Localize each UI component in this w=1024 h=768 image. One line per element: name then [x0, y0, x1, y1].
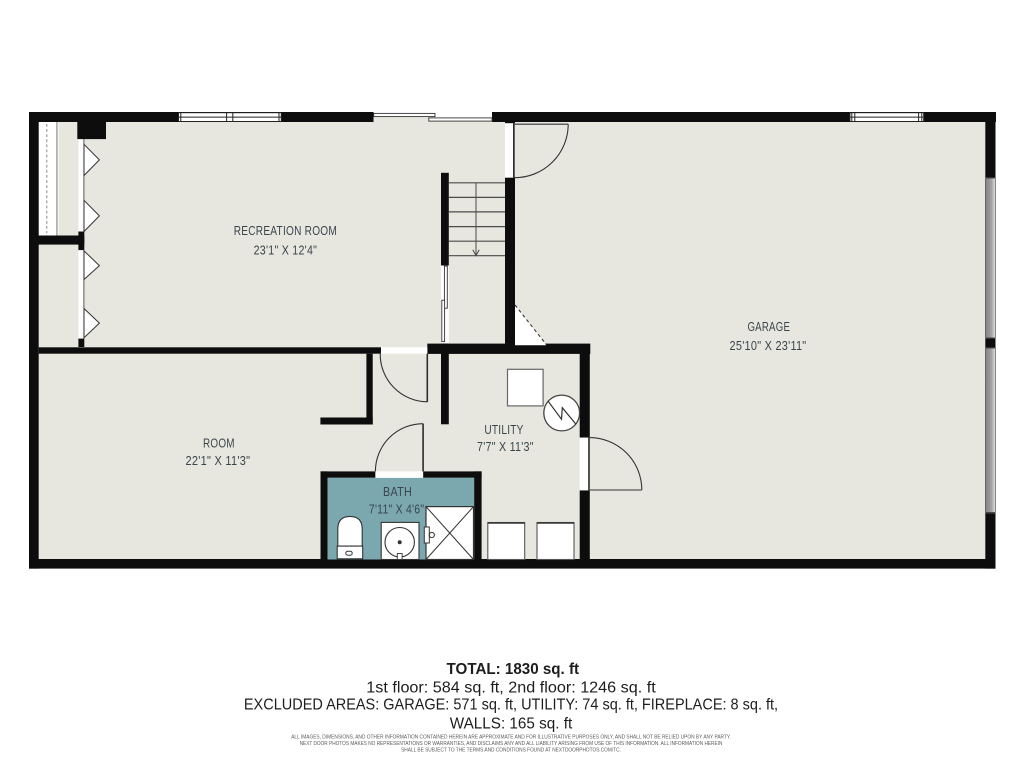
svg-text:SHALL BE SUBJECT TO THE TERMS: SHALL BE SUBJECT TO THE TERMS AND CONDIT…	[401, 748, 621, 754]
svg-text:UTILITY: UTILITY	[484, 423, 524, 437]
svg-text:ROOM: ROOM	[203, 436, 235, 450]
svg-text:NEXT DOOR PHOTOS MAKES NO REPR: NEXT DOOR PHOTOS MAKES NO REPRESENTATION…	[300, 741, 723, 747]
svg-text:RECREATION ROOM: RECREATION ROOM	[234, 224, 337, 238]
svg-text:23'1" X 12'4": 23'1" X 12'4"	[254, 244, 318, 258]
svg-text:1st floor: 584 sq. ft, 2nd flo: 1st floor: 584 sq. ft, 2nd floor: 1246 s…	[366, 679, 656, 696]
svg-text:TOTAL: 1830 sq. ft: TOTAL: 1830 sq. ft	[447, 661, 580, 678]
svg-text:ALL IMAGES, DIMENSIONS, AND OT: ALL IMAGES, DIMENSIONS, AND OTHER INFORM…	[291, 734, 731, 740]
svg-text:WALLS: 165 sq. ft: WALLS: 165 sq. ft	[450, 715, 573, 732]
svg-text:7'11" X 4'6": 7'11" X 4'6"	[369, 503, 424, 517]
svg-text:BATH: BATH	[383, 485, 412, 499]
svg-text:25'10" X 23'11": 25'10" X 23'11"	[730, 339, 807, 353]
svg-text:EXCLUDED AREAS: GARAGE: 571 sq: EXCLUDED AREAS: GARAGE: 571 sq. ft, UTIL…	[244, 697, 778, 714]
svg-text:22'1" X 11'3": 22'1" X 11'3"	[186, 454, 251, 468]
svg-text:GARAGE: GARAGE	[747, 320, 790, 334]
svg-text:7'7" X 11'3": 7'7" X 11'3"	[477, 440, 534, 454]
